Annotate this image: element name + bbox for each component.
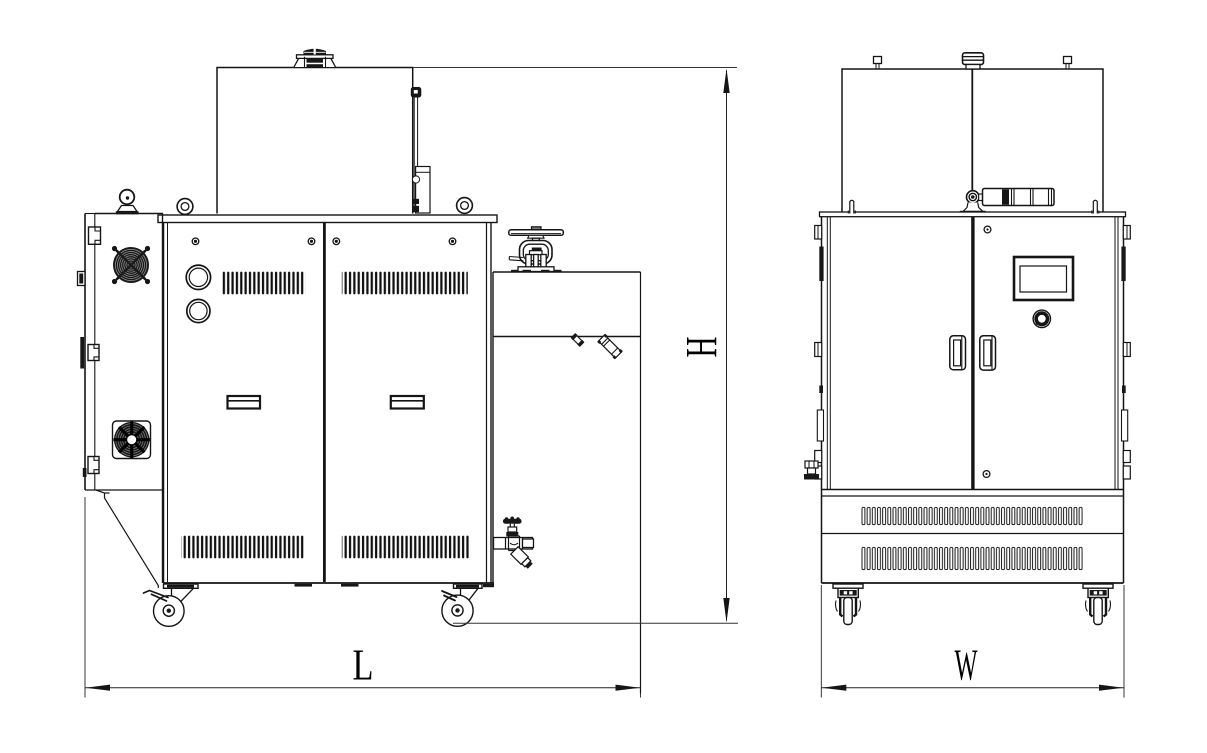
svg-text:H: H [677,337,726,358]
svg-text:W: W [955,641,978,690]
svg-text:L: L [353,641,374,690]
